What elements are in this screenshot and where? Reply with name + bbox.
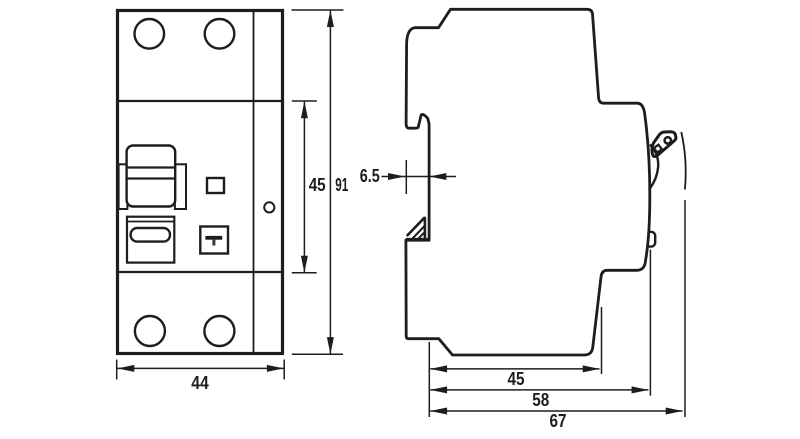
svg-text:44: 44 (191, 373, 209, 393)
svg-text:6.5: 6.5 (360, 166, 380, 186)
svg-text:58: 58 (532, 390, 549, 410)
svg-text:45: 45 (508, 369, 525, 389)
svg-text:91: 91 (335, 175, 348, 195)
svg-text:67: 67 (550, 411, 567, 431)
svg-text:45: 45 (309, 175, 326, 195)
